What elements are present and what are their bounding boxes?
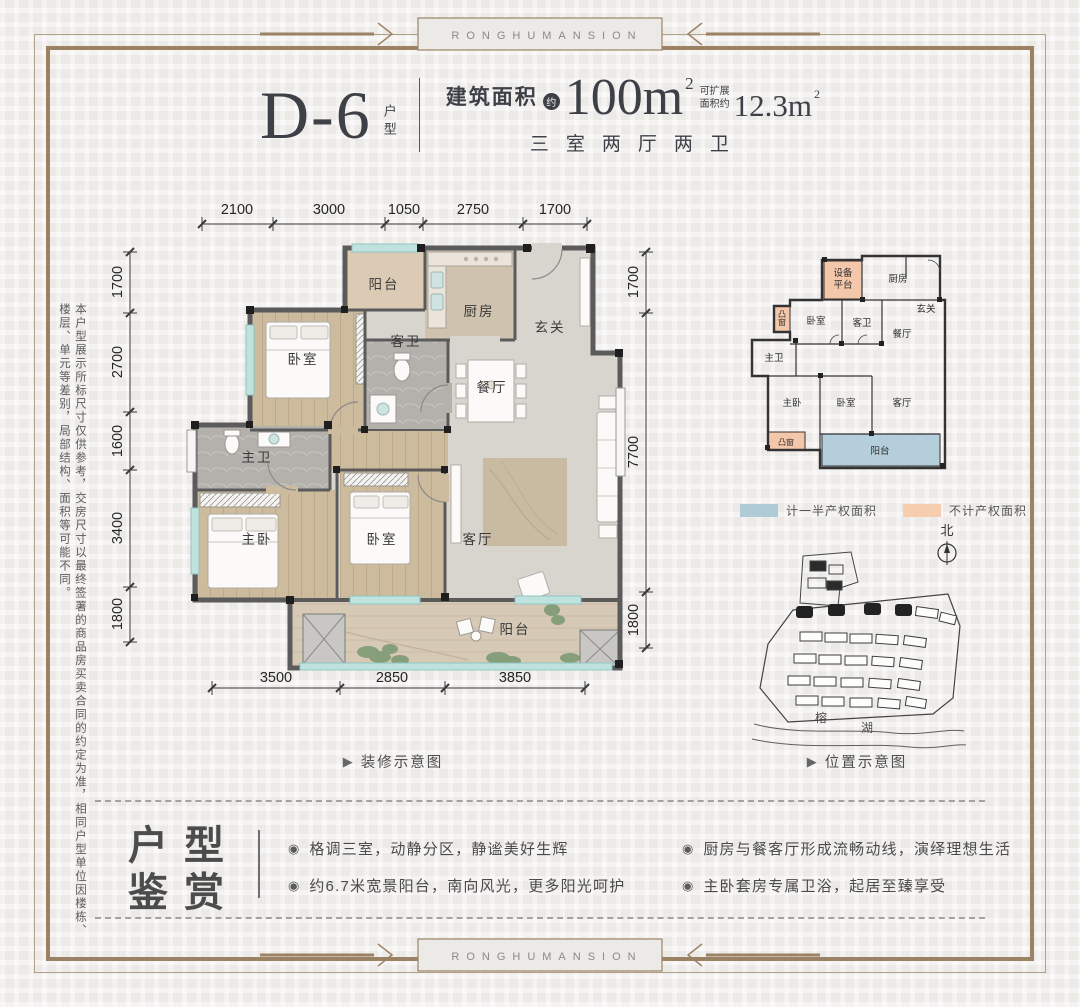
dim-right-2: 7700 [626, 436, 642, 468]
banner-arrow-left-icon [378, 23, 392, 45]
lake-waves [752, 724, 966, 748]
feature-item: ◉ 约6.7米宽景阳台，南向风光，更多阳光呵护 [288, 875, 625, 896]
expand-superscript: 2 [814, 87, 820, 102]
site-plan-caption-text: 位置示意图 [825, 751, 908, 772]
rooms-summary: 三室两厅两卫 [446, 129, 820, 156]
mini-label-bay-bottom: 凸窗 [778, 437, 794, 447]
play-circle-icon: ▶ [807, 755, 819, 768]
label-bedroom-top: 卧室 [288, 351, 319, 367]
expand-label-line1: 可扩展 [700, 86, 730, 97]
features-right-column: ◉ 厨房与餐客厅形成流畅动线，演绎理想生活 ◉ 主卧套房专属卫浴，起居至臻享受 [682, 838, 1011, 912]
mini-label-master-bedroom: 主卧 [782, 397, 802, 409]
features-title-line2: 鉴赏 [128, 869, 240, 916]
sofa [597, 412, 618, 522]
dim-top-2: 3000 [313, 202, 345, 218]
unit-specs: 建筑面积 约 100m 2 可扩展 面积约 12.3m 2 三室两厅两卫 [446, 74, 820, 156]
dim-right-3: 1800 [626, 604, 642, 636]
mini-label-bay-left: 凸窗 [778, 310, 787, 327]
dimension-lines-left: 1700 2700 1600 3400 1800 [110, 248, 137, 646]
label-living: 客厅 [463, 531, 494, 547]
mini-highlights [768, 261, 940, 466]
bullet-dot-icon: ◉ [288, 842, 299, 855]
tv-cabinet [451, 465, 461, 543]
label-foyer: 玄关 [535, 319, 566, 335]
feature-item: ◉ 主卧套房专属卫浴，起居至臻享受 [682, 875, 1011, 896]
mini-label-bedroom-top: 卧室 [806, 315, 825, 327]
mini-label-master-bath: 主卫 [764, 352, 784, 364]
label-balcony-top: 阳台 [369, 277, 400, 292]
banner-arrow-right-icon [688, 23, 702, 45]
features-divider [258, 830, 260, 898]
disclaimer-note: 本户型展示所标尺寸仅供参考，交房尺寸以最终签署的商品房买卖合同的约定为准，相同户… [56, 303, 88, 943]
banner-brand-text: RONGHUMANSION [451, 951, 642, 963]
dim-top-1: 2100 [221, 202, 253, 218]
area-legend: 计一半产权面积 不计产权面积 [740, 502, 1027, 519]
features-title-line1: 户型 [128, 822, 240, 869]
foyer-cabinet [580, 258, 590, 326]
legend-item-no-area: 不计产权面积 [903, 502, 1027, 519]
main-plan-caption: ▶ 装修示意图 [288, 751, 498, 772]
label-master-bedroom: 主卧 [242, 532, 273, 547]
expand-label-line2: 面积约 [700, 99, 730, 110]
lake-label-1: 榕 [815, 710, 827, 725]
dashed-divider-bottom [95, 917, 985, 919]
mini-label-equip-1: 设备 [833, 267, 853, 279]
top-brand-banner: RONGHUMANSION [260, 12, 820, 56]
bullet-dot-icon: ◉ [682, 879, 693, 892]
dim-bottom-3: 3850 [499, 670, 531, 686]
play-circle-icon: ▶ [343, 755, 355, 768]
header-divider [419, 78, 420, 152]
main-floor-plan: 2100 3000 1050 2750 1700 1700 2700 1600 [100, 190, 680, 700]
main-plan-caption-text: 装修示意图 [361, 751, 444, 772]
dim-bottom-1: 3500 [260, 670, 292, 686]
bullet-dot-icon: ◉ [682, 842, 693, 855]
lake-label-2: 湖 [861, 720, 873, 735]
site-plan: 榕 湖 [748, 548, 968, 760]
dim-left-5: 1800 [110, 598, 126, 630]
mini-label-balcony: 阳台 [870, 445, 889, 457]
dimension-lines-top: 2100 3000 1050 2750 1700 [198, 202, 591, 231]
label-dining: 餐厅 [477, 380, 508, 395]
label-guest-bath: 客卫 [391, 333, 422, 349]
dimension-lines-right: 1700 7700 1800 [626, 248, 653, 652]
legend-label-half: 计一半产权面积 [786, 502, 877, 519]
unit-type-label: 户型 [380, 104, 399, 140]
room-corridor [330, 430, 448, 470]
mini-label-equip-2: 平台 [833, 279, 852, 291]
dim-top-4: 2750 [457, 202, 489, 218]
dashed-divider-top [95, 800, 985, 802]
site-plan-caption: ▶ 位置示意图 [752, 751, 962, 772]
area-superscript: 2 [685, 74, 694, 94]
feature-item: ◉ 格调三室，动静分区，静谧美好生辉 [288, 838, 625, 859]
unit-code: D-6 [260, 81, 372, 149]
mini-label-dining: 餐厅 [892, 328, 912, 340]
dim-left-3: 1600 [110, 425, 126, 457]
dim-left-1: 1700 [110, 266, 126, 298]
north-label: 北 [928, 520, 966, 539]
banner-arrow-right-icon [688, 944, 702, 966]
area-value: 100m [565, 76, 683, 120]
unit-title-block: D-6 户型 建筑面积 约 100m 2 可扩展 面积约 12.3m 2 三室两… [0, 74, 1080, 156]
brochure-page: RONGHUMANSION D-6 户型 建筑面积 约 100m 2 可扩展 面… [0, 0, 1080, 1007]
legend-swatch-orange [903, 504, 941, 517]
dim-left-4: 3400 [110, 512, 126, 544]
legend-item-half-area: 计一半产权面积 [740, 502, 877, 519]
banner-arrow-left-icon [378, 944, 392, 966]
dim-right-1: 1700 [626, 266, 642, 298]
feature-text: 格调三室，动静分区，静谧美好生辉 [309, 838, 568, 859]
expand-area-value: 12.3m [734, 92, 812, 120]
legend-label-none: 不计产权面积 [949, 502, 1027, 519]
feature-text: 约6.7米宽景阳台，南向风光，更多阳光呵护 [309, 875, 625, 896]
label-kitchen: 厨房 [464, 304, 495, 319]
banner-brand-text: RONGHUMANSION [451, 30, 642, 42]
mini-unit-plan: 设备 平台 厨房 玄关 卧室 客卫 餐厅 主卫 主卧 卧室 客厅 阳台 凸窗 凸… [738, 248, 953, 476]
expand-area-label: 可扩展 面积约 [700, 85, 730, 111]
mini-label-kitchen: 厨房 [888, 273, 907, 285]
bullet-dot-icon: ◉ [288, 879, 299, 892]
approx-circle-badge: 约 [543, 93, 560, 110]
area-prefix-label: 建筑面积 [446, 81, 538, 111]
mini-label-living: 客厅 [892, 397, 912, 409]
mini-label-guest-bath: 客卫 [852, 317, 872, 329]
legend-swatch-blue [740, 504, 778, 517]
feature-text: 主卧套房专属卫浴，起居至臻享受 [703, 875, 946, 896]
mini-label-bedroom-mid: 卧室 [836, 397, 855, 409]
features-left-column: ◉ 格调三室，动静分区，静谧美好生辉 ◉ 约6.7米宽景阳台，南向风光，更多阳光… [288, 838, 625, 912]
dim-left-2: 2700 [110, 346, 126, 378]
mini-label-foyer: 玄关 [916, 303, 936, 315]
label-balcony-bottom: 阳台 [500, 622, 531, 637]
dimension-lines-bottom: 3500 2850 3850 [208, 670, 589, 695]
features-title: 户型 鉴赏 [128, 822, 240, 916]
label-bedroom-mid: 卧室 [367, 531, 398, 547]
dim-top-5: 1700 [539, 202, 571, 218]
label-master-bath: 主卫 [242, 450, 273, 465]
feature-item: ◉ 厨房与餐客厅形成流畅动线，演绎理想生活 [682, 838, 1011, 859]
feature-text: 厨房与餐客厅形成流畅动线，演绎理想生活 [703, 838, 1011, 859]
site-buildings [788, 603, 957, 709]
site-callout-cluster [800, 552, 858, 606]
area-spec-row: 建筑面积 约 100m 2 可扩展 面积约 12.3m 2 [446, 74, 820, 120]
dim-top-3: 1050 [388, 202, 420, 218]
bottom-brand-banner: RONGHUMANSION [260, 933, 820, 977]
dim-bottom-2: 2850 [376, 670, 408, 686]
